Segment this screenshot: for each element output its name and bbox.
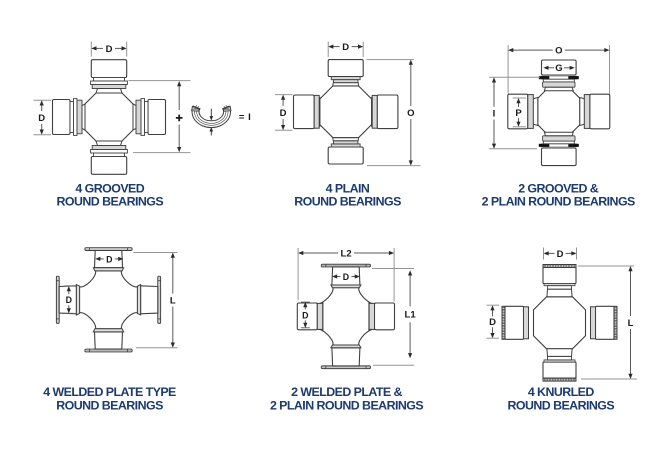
svg-text:D: D	[343, 272, 349, 282]
svg-text:D: D	[106, 44, 113, 55]
svg-text:L1: L1	[405, 310, 417, 321]
svg-text:D: D	[557, 249, 564, 260]
svg-text:D: D	[489, 317, 496, 328]
svg-text:2 WELDED PLATE &: 2 WELDED PLATE &	[291, 385, 402, 399]
svg-text:L: L	[170, 296, 176, 307]
svg-text:P: P	[515, 108, 522, 119]
svg-text:D: D	[106, 254, 112, 264]
svg-text:G: G	[555, 63, 562, 74]
svg-text:O: O	[407, 108, 414, 119]
svg-text:2 PLAIN ROUND BEARINGS: 2 PLAIN ROUND BEARINGS	[270, 399, 423, 413]
svg-text:D: D	[38, 113, 45, 124]
svg-text:L2: L2	[341, 248, 352, 259]
svg-text:ROUND BEARINGS: ROUND BEARINGS	[508, 399, 615, 413]
svg-text:2 PLAIN ROUND BEARINGS: 2 PLAIN ROUND BEARINGS	[482, 194, 635, 208]
svg-text:ROUND BEARINGS: ROUND BEARINGS	[57, 194, 164, 208]
svg-text:I: I	[493, 109, 496, 120]
svg-text:=: =	[239, 112, 245, 123]
svg-text:D: D	[66, 295, 72, 305]
svg-text:4 KNURLED: 4 KNURLED	[528, 385, 595, 399]
svg-text:4 WELDED PLATE TYPE: 4 WELDED PLATE TYPE	[43, 385, 176, 399]
svg-text:L: L	[628, 318, 634, 329]
svg-text:D: D	[342, 42, 349, 53]
svg-text:ROUND BEARINGS: ROUND BEARINGS	[56, 399, 163, 413]
svg-text:O: O	[555, 46, 562, 57]
svg-text:I: I	[248, 112, 251, 123]
svg-text:ROUND BEARINGS: ROUND BEARINGS	[294, 194, 401, 208]
svg-text:D: D	[280, 108, 287, 119]
svg-text:D: D	[302, 310, 308, 320]
